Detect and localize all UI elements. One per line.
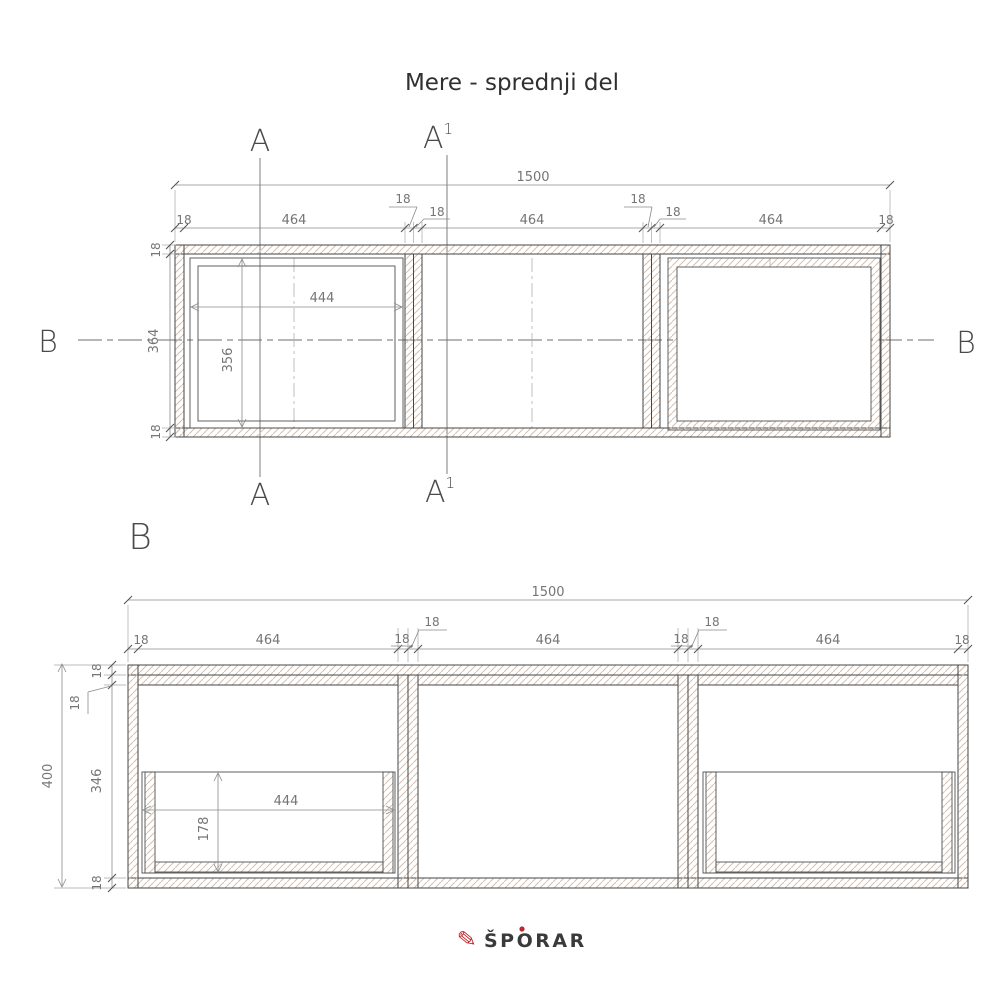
dim-18: 18 (424, 615, 439, 629)
dim-464: 464 (520, 213, 545, 228)
partition-1a (398, 675, 408, 888)
partition-1b (414, 254, 423, 428)
top-panel (128, 665, 968, 675)
dim-464: 464 (256, 633, 281, 648)
inner-top-strip-1 (138, 675, 398, 685)
right-side-panel (881, 245, 890, 437)
partition-1a (405, 254, 414, 428)
partition-2b (652, 254, 661, 428)
left-side-panel (175, 245, 184, 437)
drawing-canvas: Mere - sprednji del (0, 0, 1000, 1000)
partition-2a (643, 254, 652, 428)
dim-18: 18 (149, 424, 163, 439)
partition-2a (678, 675, 688, 888)
dim-18: 18 (630, 192, 645, 206)
inner-top-strip-3 (698, 675, 958, 685)
section-label-a-top: A (250, 124, 271, 159)
dim-178: 178 (197, 817, 212, 842)
dim-18: 18 (90, 875, 104, 890)
dim-18: 18 (665, 205, 680, 219)
dim-18: 18 (704, 615, 719, 629)
section-label-a-bottom: A (250, 478, 271, 513)
bottom-panel (128, 878, 968, 888)
dim-464: 464 (536, 633, 561, 648)
dim-18: 18 (68, 695, 82, 710)
technical-drawing-page: Mere - sprednji del (0, 0, 1000, 1000)
inner-top-strip-2 (418, 675, 678, 685)
dim-364: 364 (147, 329, 162, 354)
dim-18: 18 (429, 205, 444, 219)
dim-18: 18 (176, 213, 191, 227)
section-label-b-right: B (956, 326, 976, 361)
partition-1b (408, 675, 418, 888)
dim-18: 18 (149, 242, 163, 257)
dim-1500: 1500 (516, 170, 549, 185)
dim-464: 464 (759, 213, 784, 228)
dim-444: 444 (310, 291, 335, 306)
pencil-icon: ✎ (456, 926, 478, 954)
logo-text: ŠPORAR (484, 928, 587, 952)
left-side-panel (128, 665, 138, 888)
right-box-frame (668, 258, 880, 430)
partition-2b (688, 675, 698, 888)
dim-444: 444 (274, 794, 299, 809)
dim-464: 464 (282, 213, 307, 228)
dim-18: 18 (954, 633, 969, 647)
view-label-b: B (128, 517, 152, 558)
section-label-b-left: B (38, 325, 58, 360)
dim-1500: 1500 (531, 585, 564, 600)
dim-346: 346 (90, 769, 105, 794)
dim-18: 18 (395, 192, 410, 206)
dim-18: 18 (673, 632, 688, 646)
logo-accent-dot (519, 926, 524, 931)
dim-464: 464 (816, 633, 841, 648)
dim-18: 18 (90, 663, 104, 678)
dim-356: 356 (221, 348, 236, 373)
dim-18: 18 (133, 633, 148, 647)
dim-400: 400 (41, 764, 56, 789)
drawing-title: Mere - sprednji del (405, 70, 619, 96)
top-panel (175, 245, 890, 254)
dim-18: 18 (878, 213, 893, 227)
dim-18: 18 (394, 632, 409, 646)
right-side-panel (958, 665, 968, 888)
